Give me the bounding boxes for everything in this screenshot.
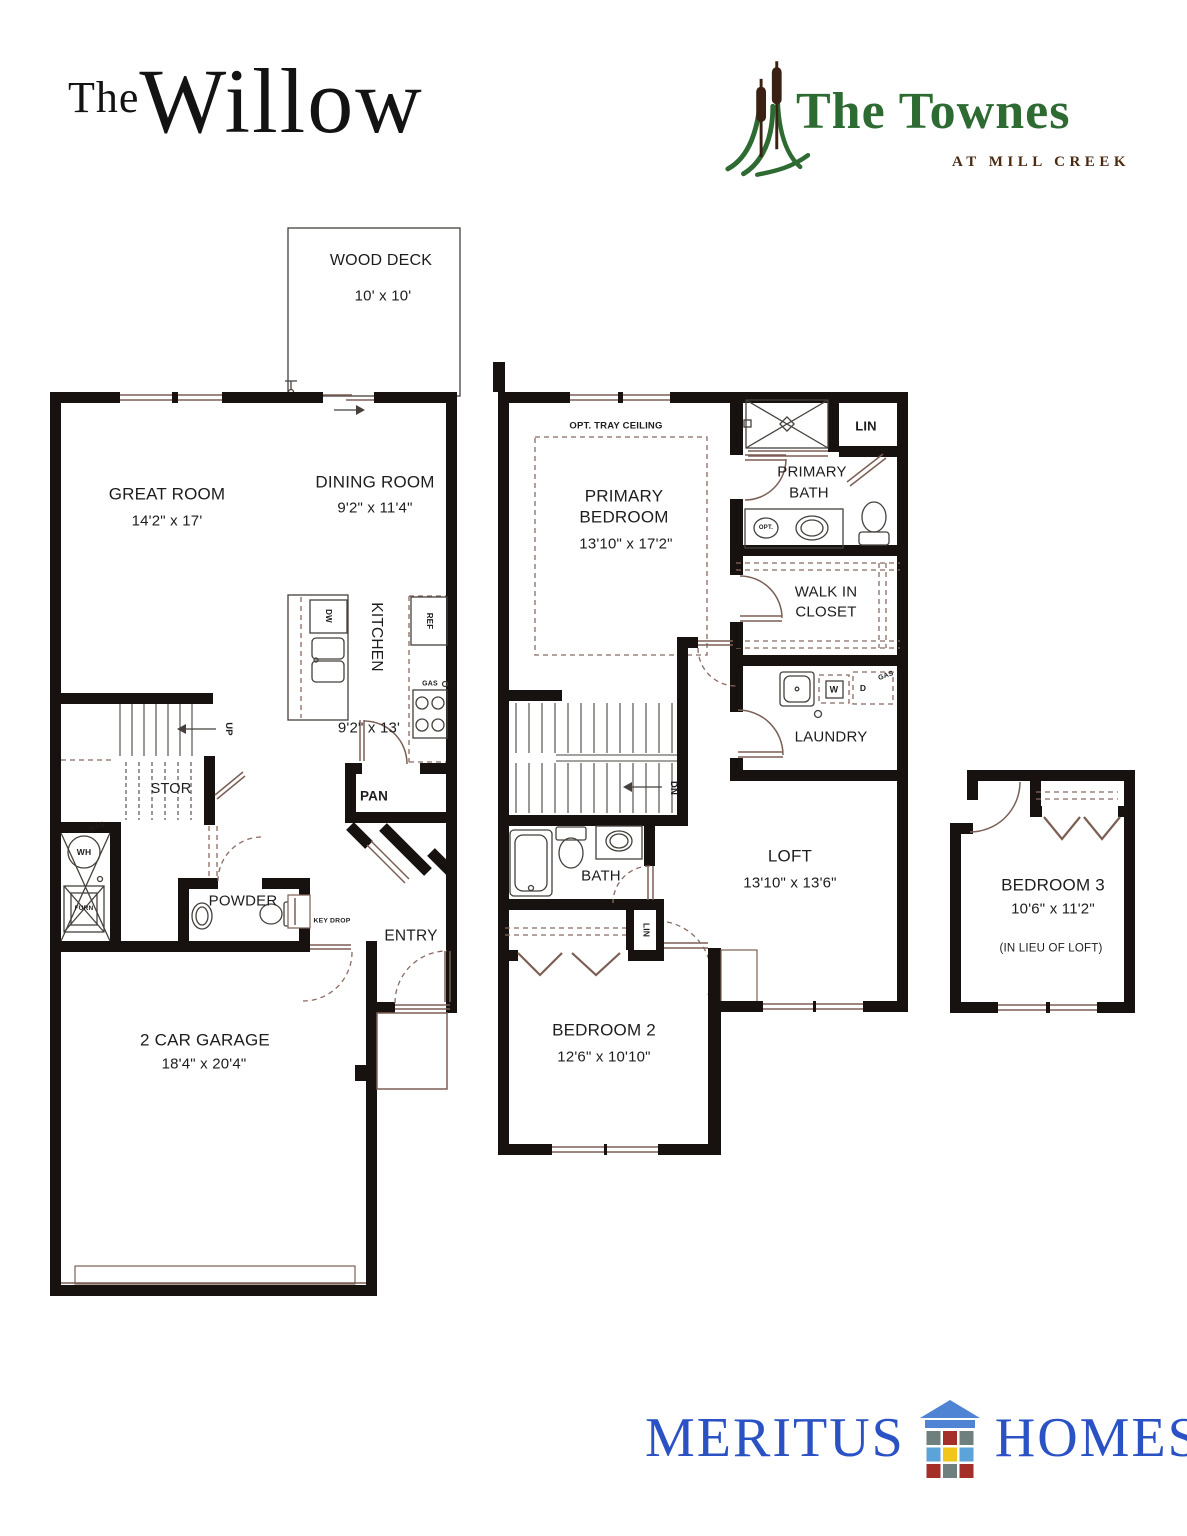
- linen-door: [847, 454, 886, 486]
- powder-door-swing: [218, 837, 262, 881]
- dishwasher-label: DW: [324, 609, 332, 623]
- gas-range-label: GAS: [422, 681, 438, 688]
- storage-label: STOR: [151, 782, 192, 797]
- kitchen-sink-icon: [312, 638, 344, 659]
- bedroom2-door-swing: [667, 922, 711, 995]
- key-drop-label: KEY DROP: [314, 919, 351, 926]
- bifold-doors: [1044, 817, 1080, 839]
- kitchen-dims: 9'2" x 13': [338, 721, 400, 736]
- great-room-dims: 14'2" x 17': [132, 514, 203, 529]
- front-porch: [377, 1013, 447, 1089]
- builder-word-2: HOMES: [995, 1406, 1187, 1470]
- garage-door-swing: [303, 952, 352, 1001]
- kitchen-island: [288, 595, 348, 720]
- stairs-down-label: DN: [668, 781, 678, 795]
- key-drop-niche: [288, 895, 310, 928]
- range-icon: [413, 690, 447, 738]
- loft-dims: 13'10" x 13'6": [743, 876, 836, 891]
- builder-logo: MERITUS HOMES: [645, 1398, 1187, 1478]
- bifold-doors: [518, 953, 562, 975]
- up-arrow-icon: [177, 724, 186, 734]
- primary-toilet-icon: [859, 502, 889, 545]
- laundry-tub-icon: [780, 672, 814, 706]
- bedroom2-label: BEDROOM 2: [552, 1022, 656, 1039]
- dryer-label: D: [860, 684, 866, 693]
- washer-label: W: [830, 686, 839, 695]
- primary-bedroom-dims: 13'10" x 17'2": [579, 537, 672, 552]
- stairs-up-label: UP: [223, 722, 233, 736]
- builder-house-icon: [918, 1398, 982, 1478]
- wood-deck-dims: 10' x 10': [355, 289, 412, 304]
- primary-bath-label-1: PRIMARY: [777, 465, 846, 480]
- great-room-label: GREAT ROOM: [109, 486, 226, 503]
- tray-ceiling-label: OPT. TRAY CEILING: [569, 421, 662, 431]
- bedroom3-label: BEDROOM 3: [1001, 877, 1105, 894]
- linen-upper-label: LIN: [855, 420, 877, 433]
- garage-overhead-door: [75, 1266, 355, 1284]
- primary-bedroom-label-1: PRIMARY: [585, 488, 664, 505]
- builder-word-1: MERITUS: [645, 1406, 905, 1470]
- tub-icon: [510, 830, 552, 896]
- primary-bath-label-2: BATH: [789, 486, 829, 501]
- hose-bib-icon: [285, 381, 297, 389]
- laundry-door-swing: [738, 710, 783, 755]
- first-floor-plan: [50, 228, 460, 1296]
- water-heater-label: WH: [77, 848, 92, 857]
- great-room-windows: [120, 395, 222, 400]
- bedroom3-dims: 10'6" x 11'2": [1011, 902, 1095, 917]
- entry-label: ENTRY: [384, 928, 437, 944]
- bath-vanity: [596, 826, 642, 859]
- wic-label-1: WALK IN: [795, 585, 858, 600]
- wic-label-2: CLOSET: [795, 605, 856, 620]
- floor-plan-sheet: The Willow The Townes AT MILL CREEK: [0, 0, 1187, 1536]
- pantry-label: PAN: [360, 789, 388, 803]
- dining-room-label: DINING ROOM: [315, 474, 434, 491]
- bedroom2-dims: 12'6" x 10'10": [557, 1050, 650, 1065]
- bath-toilet-icon: [556, 827, 586, 868]
- refrigerator-label: REF: [425, 613, 433, 630]
- kitchen-label: KITCHEN: [368, 602, 384, 671]
- linen-hall-label: LIN: [642, 923, 651, 937]
- wood-deck-label: WOOD DECK: [330, 253, 432, 269]
- garage-dims: 18'4" x 20'4": [162, 1057, 247, 1072]
- front-door-swing: [395, 951, 447, 1003]
- down-arrow-icon: [623, 782, 632, 792]
- slider-arrow-icon: [356, 405, 365, 415]
- loft-label: LOFT: [768, 848, 812, 865]
- laundry-label: LAUNDRY: [795, 730, 868, 745]
- powder-label: POWDER: [209, 894, 278, 909]
- wic-door-swing: [740, 576, 782, 618]
- bath-label: BATH: [581, 869, 621, 884]
- primary-bedroom-label-2: BEDROOM: [579, 509, 668, 526]
- storage-door: [215, 772, 245, 799]
- garage-label: 2 CAR GARAGE: [140, 1032, 270, 1049]
- stairs-down-treads: [516, 703, 672, 753]
- floorplan-linework: [0, 0, 1187, 1536]
- shower-icon: [744, 400, 828, 456]
- dining-room-dims: 9'2" x 11'4": [337, 501, 412, 516]
- opt-sink-label: OPT.: [759, 525, 773, 531]
- furnace-label: FURN: [75, 906, 94, 913]
- bedroom3-note: (IN LIEU OF LOFT): [999, 943, 1102, 955]
